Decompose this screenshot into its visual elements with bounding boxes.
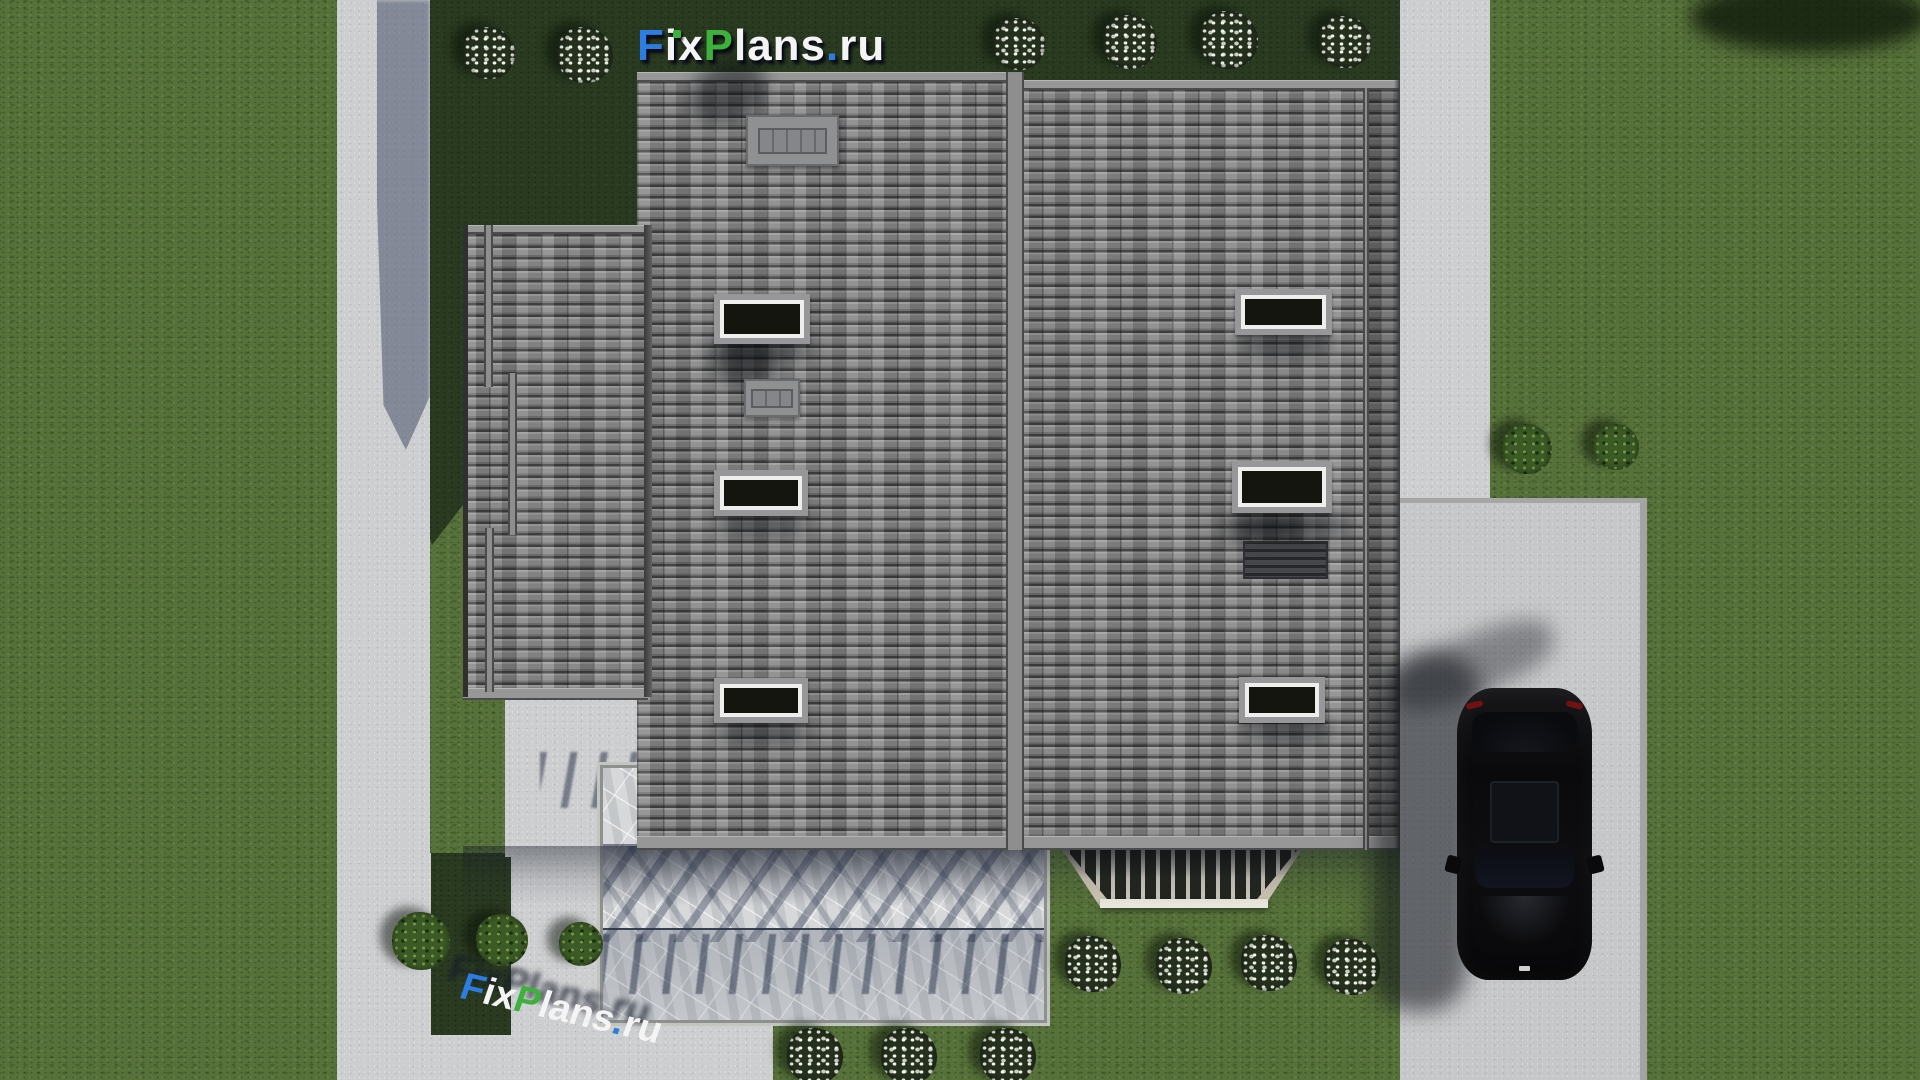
car-hood-highlight — [1471, 896, 1578, 956]
flower-bush — [993, 18, 1045, 70]
wing-ridge-2 — [508, 373, 517, 535]
skylight-right-3 — [1239, 677, 1325, 723]
skylight-glass — [1242, 471, 1322, 503]
flower-bush — [1324, 939, 1380, 995]
skylight-glass — [724, 304, 800, 334]
roof-vent — [1243, 541, 1328, 579]
right-walkway — [1400, 0, 1490, 505]
logo-letter: . — [826, 21, 839, 70]
skylight-center-2 — [714, 470, 808, 516]
flower-bush — [1319, 16, 1371, 68]
skylight-glass — [1245, 299, 1322, 325]
skylight-glass — [1249, 687, 1315, 713]
logo-letter: ru — [839, 21, 885, 70]
shrub — [1502, 424, 1552, 474]
skylight-right-2 — [1232, 461, 1332, 513]
roof-trim-right-top — [1016, 80, 1400, 90]
roof-section-right — [1016, 80, 1400, 850]
flower-bush — [980, 1028, 1036, 1080]
car — [1457, 688, 1592, 980]
flower-bush — [1200, 11, 1258, 69]
flower-bush — [1065, 936, 1121, 992]
car-taillight-left — [1466, 700, 1484, 710]
logo-letter: lans — [734, 21, 826, 70]
roof-valley-wing — [644, 225, 652, 697]
logo-letter: x — [678, 21, 703, 70]
chimney-small-cap — [751, 389, 792, 408]
skylight-glass — [724, 480, 798, 506]
chimney-small — [744, 379, 800, 417]
logo-letter: F — [637, 21, 665, 70]
wing-ridge-1 — [484, 225, 493, 387]
logo-i-dot — [673, 30, 681, 38]
roof-main-ridge — [1006, 72, 1024, 850]
car-sunroof — [1490, 781, 1559, 843]
porch-steps — [603, 928, 1044, 1020]
car-windshield — [1475, 848, 1574, 888]
flower-bush — [463, 27, 515, 79]
skylight-shadow — [1238, 512, 1348, 538]
flower-bush — [881, 1028, 937, 1080]
logo-letter: P — [704, 21, 734, 70]
skylight-right-1 — [1235, 289, 1332, 335]
eave-shadow — [463, 846, 1400, 906]
logo-letter: i — [665, 21, 678, 70]
flower-bush — [1156, 938, 1212, 994]
skylight-center-1 — [714, 294, 810, 344]
car-mirror-left — [1444, 854, 1463, 874]
wing-left-eave-line — [463, 225, 468, 697]
roof-trim-center-top — [637, 72, 1016, 82]
skylight-shadow — [714, 720, 810, 742]
chimney-cap — [758, 128, 827, 154]
roof-right-sub-ridge — [1363, 88, 1369, 850]
wing-ridge-3 — [485, 528, 494, 692]
flower-bush — [1241, 935, 1297, 991]
shrub — [392, 912, 450, 970]
car-license-dot — [1519, 966, 1530, 971]
car-rear-window — [1472, 712, 1577, 752]
skylight-shadow — [1235, 332, 1335, 354]
flower-bush — [787, 1028, 843, 1080]
baluster-shadows-on-steps — [603, 934, 1044, 994]
skylight-center-3 — [714, 678, 808, 723]
shrub — [1593, 424, 1639, 470]
flower-bush — [1103, 15, 1157, 69]
car-taillight-right — [1566, 700, 1584, 710]
site-render: FixPlans.ru FixPlans.ru FixPlans.ru — [0, 0, 1920, 1080]
chimney-main — [746, 115, 839, 166]
shrub — [559, 922, 603, 966]
flower-bush — [557, 27, 613, 83]
roof-section-center — [637, 72, 1016, 850]
skylight-glass — [724, 688, 798, 713]
